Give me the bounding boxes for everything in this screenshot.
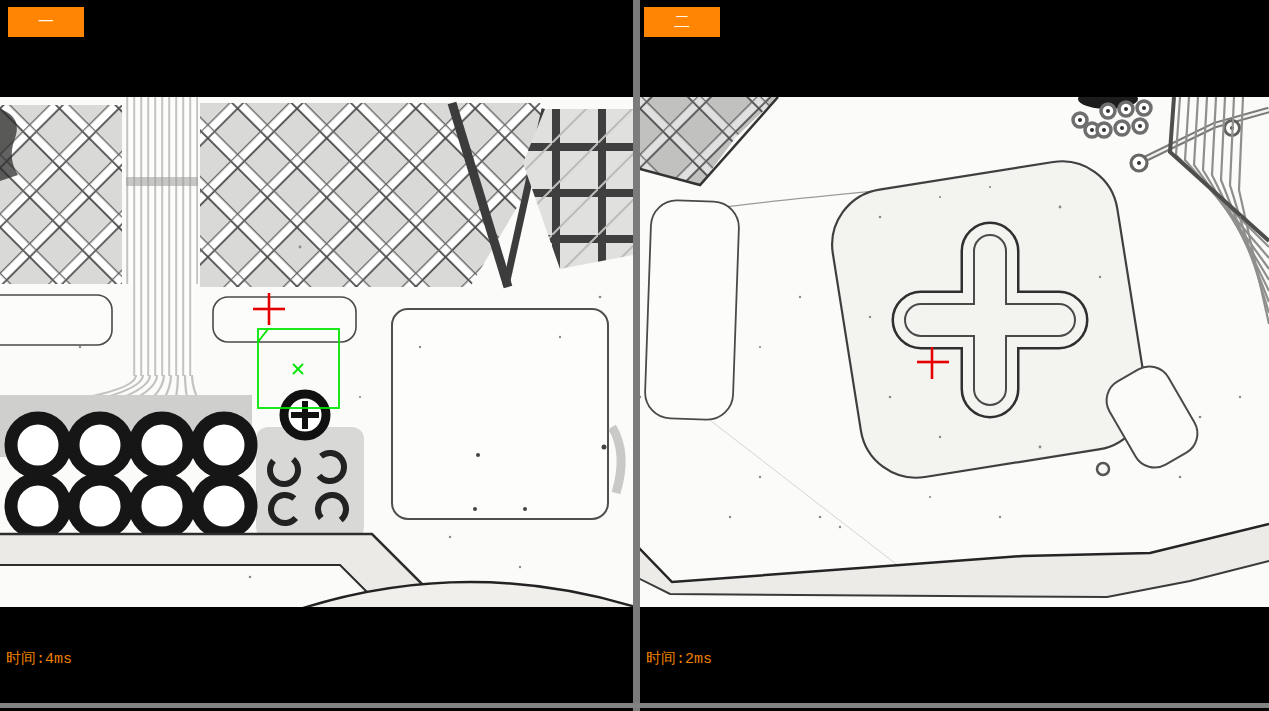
camera-1-stats: 时间:4ms Samp:604.09, 541.91, -0.003 ORG:5…: [0, 607, 633, 703]
camera-2-button[interactable]: 二: [644, 7, 720, 37]
camera-pane-1: 一: [0, 0, 633, 711]
pane1-topbar: 一: [0, 0, 633, 97]
camera-2-stats: 时间:2ms Samp:0.00, 0.00, 0.000 ORG:596.56…: [640, 607, 1269, 703]
camera-1-button[interactable]: 一: [8, 7, 84, 37]
pcb-image-1: [0, 97, 633, 607]
camera-pane-2: 二: [640, 0, 1269, 711]
stat-time-1: 时间:4ms: [6, 650, 633, 670]
pcb1-texture: [0, 97, 633, 607]
app-window: 一: [0, 0, 1269, 711]
pane2-topbar: 二: [640, 0, 1269, 97]
stat-time-2: 时间:2ms: [646, 650, 1269, 670]
window-bottom-strip: [0, 703, 1269, 708]
camera-2-viewport[interactable]: [640, 97, 1269, 607]
camera-1-viewport[interactable]: [0, 97, 633, 607]
pcb2-texture: [640, 97, 1269, 607]
pcb-image-2: [640, 97, 1269, 607]
pane-splitter[interactable]: [633, 0, 640, 711]
